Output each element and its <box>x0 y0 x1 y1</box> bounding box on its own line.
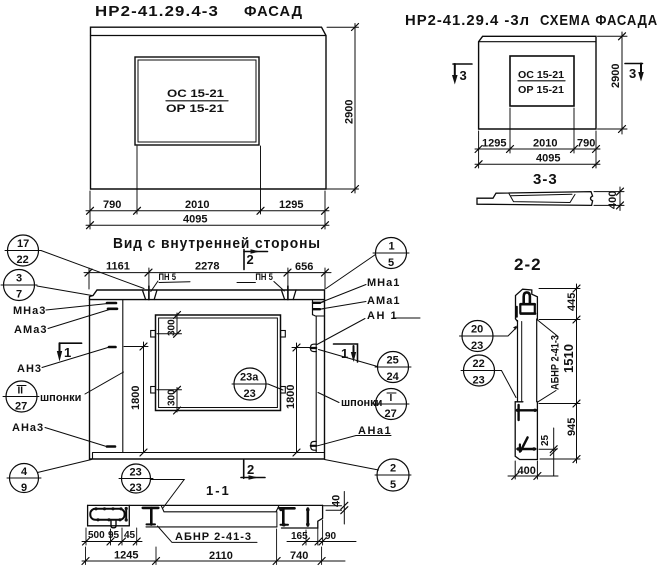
svg-text:300: 300 <box>167 389 178 406</box>
svg-text:2010: 2010 <box>185 199 209 211</box>
svg-text:27: 27 <box>15 401 27 413</box>
svg-text:5: 5 <box>390 479 396 491</box>
svg-text:790: 790 <box>577 138 595 150</box>
svg-text:23: 23 <box>130 482 142 494</box>
svg-text:24: 24 <box>387 371 400 383</box>
svg-text:АМа3: АМа3 <box>14 324 47 336</box>
svg-text:2110: 2110 <box>209 550 233 562</box>
svg-text:4: 4 <box>21 466 28 478</box>
svg-text:400: 400 <box>607 191 619 209</box>
svg-text:17: 17 <box>17 238 29 250</box>
svg-text:I: I <box>390 393 393 404</box>
svg-text:23: 23 <box>244 388 256 400</box>
svg-text:22: 22 <box>17 254 29 266</box>
svg-text:шпонки: шпонки <box>40 392 81 404</box>
svg-text:23: 23 <box>130 467 142 479</box>
svg-text:90: 90 <box>325 531 337 542</box>
svg-text:АБНР 2-41-3: АБНР 2-41-3 <box>175 531 252 543</box>
svg-text:95: 95 <box>108 530 120 541</box>
svg-text:945: 945 <box>566 418 578 436</box>
svg-text:22: 22 <box>473 358 485 370</box>
svg-text:20: 20 <box>471 324 483 336</box>
svg-text:АНа3: АНа3 <box>12 422 44 434</box>
svg-text:ПН 5: ПН 5 <box>255 272 273 283</box>
svg-text:3: 3 <box>629 66 636 81</box>
svg-text:Вид с внутренней стороны: Вид с внутренней стороны <box>113 235 321 252</box>
svg-text:23а: 23а <box>240 372 259 384</box>
svg-text:шпонки: шпонки <box>341 397 382 409</box>
svg-text:2: 2 <box>390 463 396 475</box>
svg-text:2010: 2010 <box>533 138 557 150</box>
svg-text:СХЕМА ФАСАДА: СХЕМА ФАСАДА <box>540 12 658 29</box>
svg-text:НР2-41.29.4 -3л: НР2-41.29.4 -3л <box>405 12 530 29</box>
svg-text:4095: 4095 <box>183 214 207 226</box>
svg-text:9: 9 <box>21 482 27 494</box>
svg-text:1245: 1245 <box>114 550 138 562</box>
svg-text:1800: 1800 <box>130 386 142 410</box>
svg-text:2278: 2278 <box>195 261 219 273</box>
svg-text:2900: 2900 <box>344 100 356 124</box>
svg-text:5: 5 <box>388 257 394 269</box>
svg-text:ФАСАД: ФАСАД <box>244 3 303 20</box>
svg-text:1510: 1510 <box>561 344 576 373</box>
svg-text:740: 740 <box>290 550 308 562</box>
svg-text:2: 2 <box>247 252 254 267</box>
svg-text:2-2: 2-2 <box>514 255 542 274</box>
svg-text:ОС 15-21: ОС 15-21 <box>518 70 564 81</box>
svg-text:7: 7 <box>16 289 22 301</box>
svg-text:2: 2 <box>247 462 254 477</box>
svg-text:300: 300 <box>167 319 178 336</box>
svg-text:1295: 1295 <box>482 138 506 150</box>
svg-text:АМа1: АМа1 <box>367 295 400 307</box>
svg-text:25: 25 <box>387 355 399 367</box>
svg-text:1161: 1161 <box>106 261 130 273</box>
svg-text:500: 500 <box>88 530 105 541</box>
svg-text:1-1: 1-1 <box>206 483 231 498</box>
svg-text:400: 400 <box>518 465 536 477</box>
svg-text:45: 45 <box>124 530 136 541</box>
svg-text:ОР 15-21: ОР 15-21 <box>166 103 224 115</box>
svg-text:ОР 15-21: ОР 15-21 <box>518 85 564 96</box>
svg-text:1295: 1295 <box>279 199 303 211</box>
svg-text:2900: 2900 <box>610 64 622 88</box>
svg-text:4095: 4095 <box>536 153 560 165</box>
svg-text:25: 25 <box>540 434 551 446</box>
svg-text:МНа3: МНа3 <box>13 305 46 317</box>
svg-text:27: 27 <box>385 408 397 420</box>
svg-text:23: 23 <box>471 340 483 352</box>
svg-text:40: 40 <box>331 495 343 507</box>
svg-text:1: 1 <box>64 345 71 360</box>
svg-text:3-3: 3-3 <box>533 171 558 188</box>
svg-text:ОС 15-21: ОС 15-21 <box>167 88 224 100</box>
svg-text:23: 23 <box>473 375 485 387</box>
svg-text:АН 1: АН 1 <box>367 310 398 322</box>
svg-text:656: 656 <box>295 261 313 273</box>
svg-text:1: 1 <box>341 346 348 361</box>
svg-text:3: 3 <box>16 273 22 285</box>
svg-text:3: 3 <box>460 68 467 83</box>
svg-text:445: 445 <box>566 293 578 311</box>
svg-text:II: II <box>18 386 24 397</box>
svg-text:НР2-41.29.4-3: НР2-41.29.4-3 <box>95 3 219 20</box>
svg-text:АБНР 2-41-3: АБНР 2-41-3 <box>550 335 562 390</box>
svg-text:МНа1: МНа1 <box>367 277 400 289</box>
svg-text:1800: 1800 <box>285 385 297 409</box>
svg-text:165: 165 <box>291 531 308 542</box>
svg-text:1: 1 <box>389 241 395 253</box>
svg-text:790: 790 <box>103 199 121 211</box>
svg-text:ПН 5: ПН 5 <box>159 272 177 283</box>
svg-text:АН3: АН3 <box>17 363 42 375</box>
